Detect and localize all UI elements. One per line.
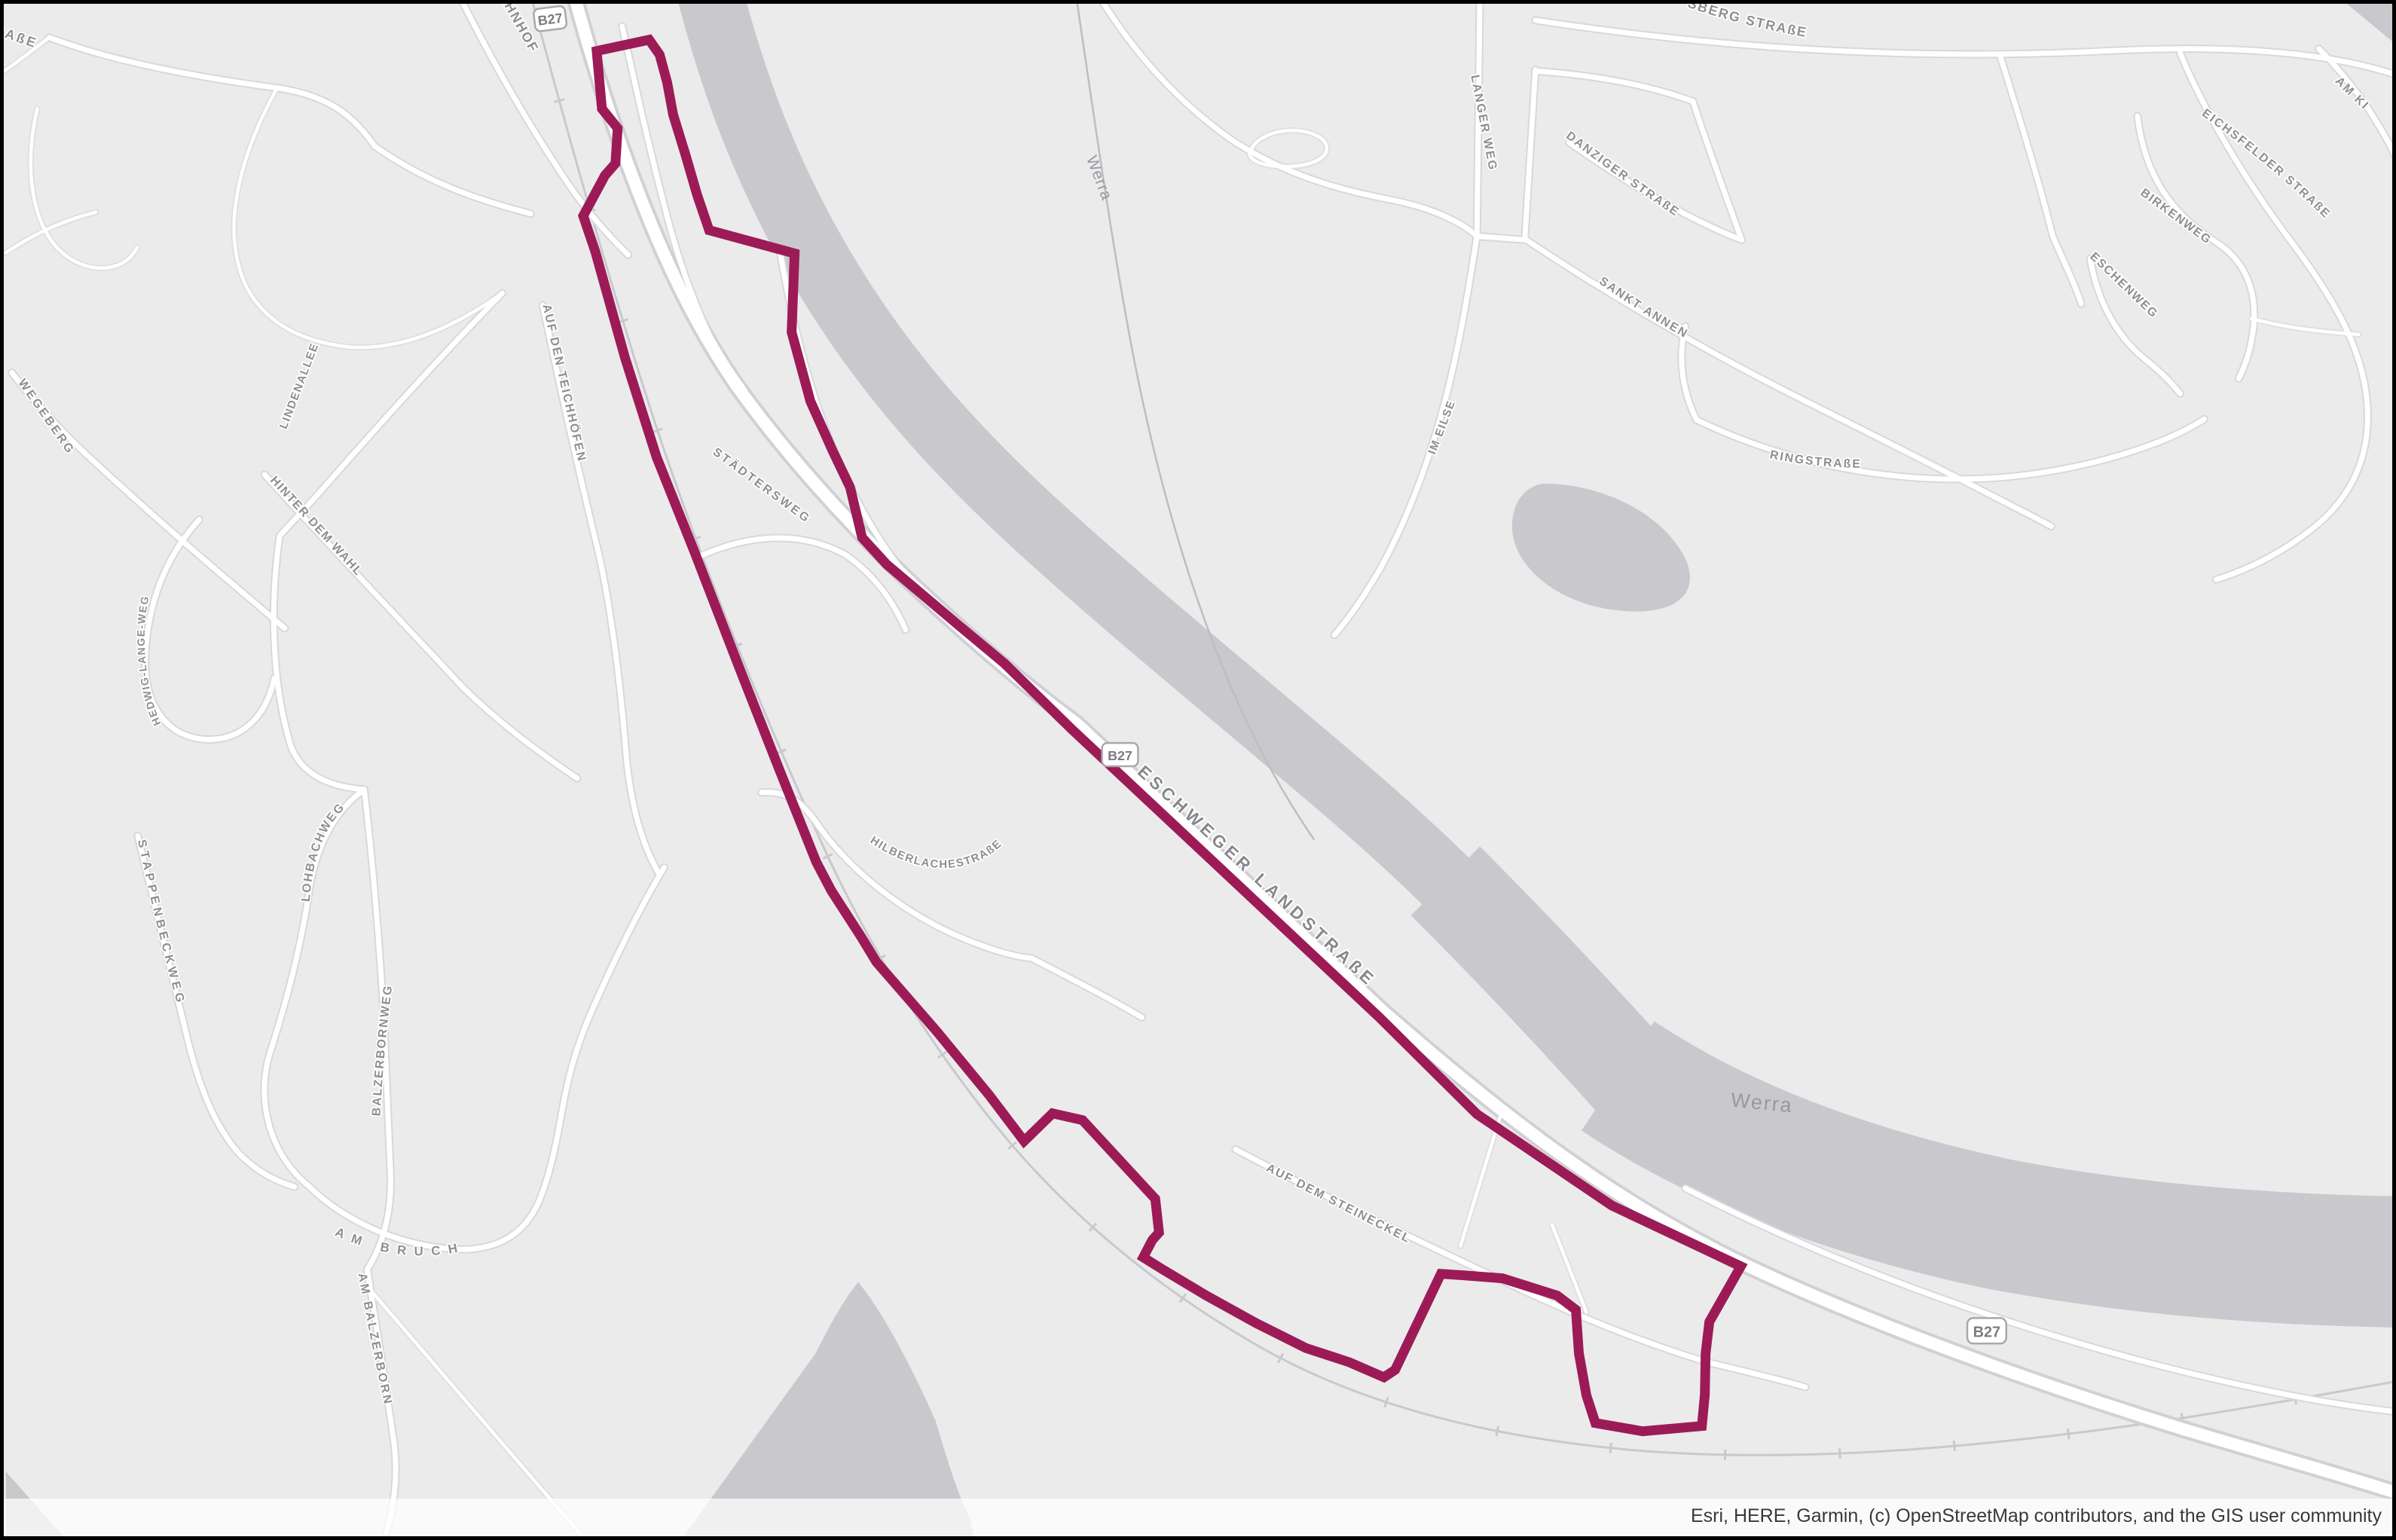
route-shield-b27-middle: B27 [1102,743,1138,766]
highlighted-area-boundary[interactable] [583,40,1740,1432]
street-label-lohbachweg: LOHBACHWEG [300,800,348,902]
street-label-auf-dem-steineckel: AUF DEM STEINECKEL [1264,1162,1413,1246]
route-shield-b27-north: B27 [533,5,567,32]
street-label-birkenweg: BIRKENWEG [2138,186,2214,246]
street-label-strasse: STRAßE [4,15,40,51]
street-label-sberg-strasse: SBERG STRAßE [1685,4,1808,40]
map-canvas[interactable]: STRAßE BAHNHOF WEGEBERG LINDENALLEE HINT… [0,0,2396,1540]
street-label-wegeberg: WEGEBERG [15,377,77,457]
basemap: STRAßE BAHNHOF WEGEBERG LINDENALLEE HINT… [4,4,2392,1536]
street-label-stappenbeckweg: STAPPENBECKWEG [135,839,188,1007]
street-label-auf-den-teichhoefen: AUF DEN TEICHHÖFEN [539,303,588,463]
route-shield-b27-southeast: B27 [1967,1318,2006,1343]
street-label-danziger-strasse: DANZIGER STRAßE [1563,130,1682,219]
street-label-hinter-dem-wahl: HINTER DEM WAHL [267,474,365,579]
street-label-hilberlachestrasse: HILBERLACHESTRAßE [868,834,1004,871]
street-label-sankt-annen: SANKT ANNEN [1597,275,1690,341]
water-label-werra-north: Werra [1083,154,1115,203]
svg-text:B27: B27 [1973,1324,2001,1340]
attribution-bar: Esri, HERE, Garmin, (c) OpenStreetMap co… [4,1499,2392,1536]
street-label-ringstrasse: RINGSTRAßE [1769,448,1862,471]
street-label-lindenallee: LINDENALLEE [277,341,322,431]
attribution-text: Esri, HERE, Garmin, (c) OpenStreetMap co… [1691,1505,2382,1527]
street-label-balzerbornweg: BALZERBORNWEG [370,984,395,1117]
svg-text:B27: B27 [1108,748,1132,763]
svg-text:B27: B27 [537,11,564,29]
street-label-langer-weg: LANGER WEG [1468,74,1499,172]
